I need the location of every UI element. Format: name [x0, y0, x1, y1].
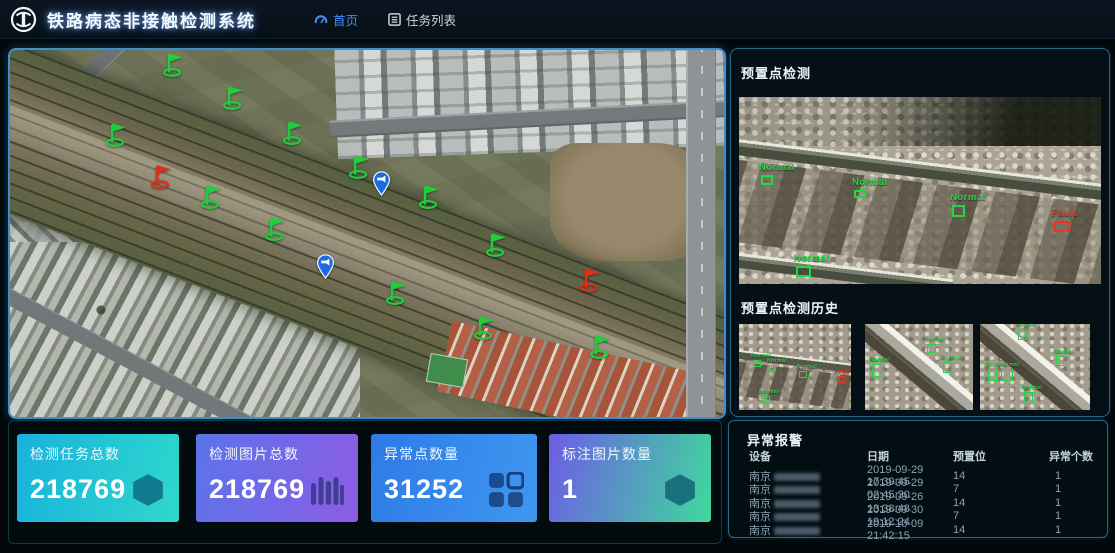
stats-strip: 检测任务总数 218769 检测图片总数 218769 异常点数量 31252: [8, 420, 722, 544]
stat-label: 标注图片数量: [562, 444, 652, 464]
nav-tasks-label: 任务列表: [406, 10, 456, 29]
grid-icon: [488, 472, 524, 508]
detection-box-normal: [799, 371, 807, 378]
flag-green-marker[interactable]: [264, 215, 288, 241]
detection-box-normal: [927, 344, 936, 353]
detection-label: Fault: [1052, 208, 1077, 219]
flag-green-marker[interactable]: [162, 51, 186, 77]
pin-blue-marker[interactable]: [372, 171, 396, 197]
alarm-title: 异常报警: [747, 430, 803, 449]
detection-label: Normal: [794, 253, 830, 264]
task-list-icon: [388, 13, 401, 26]
detection-box-normal: [1001, 369, 1013, 381]
stat-card-images: 检测图片总数 218769: [196, 434, 358, 522]
detection-panel: 预置点检测 NormalNormalNormalFaultNormal 预置点检…: [730, 48, 1110, 417]
detection-label: Normal: [759, 162, 795, 173]
flag-green-marker[interactable]: [589, 333, 613, 359]
hexagon-icon: [130, 472, 166, 508]
flag-green-marker[interactable]: [105, 121, 129, 147]
main-nav: 首页 任务列表: [314, 10, 456, 29]
redacted-text: [774, 527, 820, 535]
satellite-map[interactable]: [8, 48, 726, 419]
detection-label: Normal: [941, 355, 961, 361]
page-title: 铁路病态非接触检测系统: [47, 7, 256, 32]
detection-box-normal: [753, 360, 761, 367]
dashboard-icon: [314, 12, 328, 26]
alarm-preset: 14: [953, 524, 1049, 536]
flag-green-marker[interactable]: [485, 231, 509, 257]
stat-card-annotated: 标注图片数量 1: [549, 434, 711, 522]
alarm-count: 1: [1049, 483, 1093, 495]
detection-box-normal: [952, 205, 965, 217]
alarm-device: 南京: [749, 522, 867, 538]
flag-green-marker[interactable]: [385, 279, 409, 305]
alarm-table: 设备 日期 预置位 异常个数 南京2019-09-29 17:39:45141南…: [749, 448, 1093, 531]
detection-box-normal: [796, 266, 811, 277]
detection-box-fault: [837, 376, 845, 383]
hexagon-icon: [662, 472, 698, 508]
detection-label: Normal: [759, 389, 779, 395]
detection-box-normal: [761, 175, 773, 185]
detection-image: NormalNormalNormalFaultNormal: [739, 97, 1101, 284]
alarm-count: 1: [1049, 497, 1093, 509]
detection-label: Normal: [925, 337, 945, 343]
alarm-preset: 14: [953, 497, 1049, 509]
railway-detection-dashboard: 铁路病态非接触检测系统 首页 任务列表: [0, 0, 1115, 553]
detection-box-normal: [1018, 329, 1027, 340]
stat-card-tasks: 检测任务总数 218769: [17, 434, 179, 522]
map-marker-layer: [10, 50, 724, 417]
alarm-date: 2019-10-09 21:42:15: [867, 518, 953, 542]
flag-red-marker[interactable]: [579, 266, 603, 292]
detection-image-vegetation: [739, 97, 1101, 146]
nav-item-task-list[interactable]: 任务列表: [388, 10, 456, 29]
flag-green-marker[interactable]: [200, 183, 224, 209]
detection-label: Normal: [852, 177, 888, 188]
detection-box-normal: [1024, 392, 1033, 404]
alarm-preset: 14: [953, 470, 1049, 482]
history-title: 预置点检测历史: [741, 298, 839, 317]
stat-value: 1: [562, 474, 578, 505]
history-thumbnail-2[interactable]: NormalNormalNormal: [865, 324, 973, 410]
stat-label: 检测图片总数: [209, 444, 299, 464]
bars-icon: [309, 472, 345, 508]
detection-label: Normal: [1054, 349, 1074, 355]
alarm-preset: 7: [953, 483, 1049, 495]
stat-value: 218769: [209, 474, 305, 505]
redacted-text: [774, 500, 820, 508]
stat-value: 218769: [30, 474, 126, 505]
detection-box-normal: [872, 364, 882, 377]
pin-blue-marker[interactable]: [316, 254, 340, 280]
flag-green-marker[interactable]: [348, 153, 372, 179]
history-thumbnail-1[interactable]: NormalNormalNormalFaultNormal: [739, 324, 851, 410]
alarm-count: 1: [1049, 524, 1093, 536]
redacted-text: [774, 486, 820, 494]
nav-home-label: 首页: [333, 10, 358, 29]
railway-logo-icon: [10, 6, 37, 33]
detection-box-fault: [1054, 221, 1069, 232]
stat-card-abnormal: 异常点数量 31252: [371, 434, 537, 522]
redacted-text: [774, 473, 820, 481]
history-thumbnails: NormalNormalNormalFaultNormalNormalNorma…: [739, 324, 1101, 410]
col-device: 设备: [749, 448, 867, 464]
detection-title: 预置点检测: [741, 63, 811, 82]
col-preset: 预置位: [953, 448, 1049, 464]
stat-label: 异常点数量: [384, 444, 459, 464]
detection-box-normal: [854, 190, 866, 198]
alarm-table-header: 设备 日期 预置位 异常个数: [749, 448, 1093, 464]
alarm-table-body: 南京2019-09-29 17:39:45141南京2019-09-29 02:…: [749, 464, 1093, 531]
history-thumbnail-3[interactable]: NormalNormalNormalNormalNormal: [980, 324, 1090, 410]
flag-green-marker[interactable]: [282, 119, 306, 145]
redacted-text: [774, 513, 820, 521]
detection-box-normal: [761, 396, 770, 403]
alarm-panel: 异常报警 设备 日期 预置位 异常个数 南京2019-09-29 17:39:4…: [728, 420, 1108, 538]
flag-green-marker[interactable]: [418, 183, 442, 209]
col-date: 日期: [867, 448, 953, 464]
detection-label: Normal: [1022, 385, 1042, 391]
alarm-count: 1: [1049, 510, 1093, 522]
header: 铁路病态非接触检测系统 首页 任务列表: [0, 0, 1115, 39]
nav-item-home[interactable]: 首页: [314, 10, 358, 29]
detection-box-normal: [943, 362, 952, 373]
detection-label: Normal: [870, 357, 890, 363]
detection-box-normal: [1056, 356, 1064, 366]
detection-box-normal: [769, 365, 776, 371]
stat-value: 31252: [384, 474, 464, 505]
flag-green-marker[interactable]: [222, 84, 246, 110]
stat-label: 检测任务总数: [30, 444, 120, 464]
detection-label: Normal: [1016, 324, 1036, 328]
detection-label: Normal: [767, 358, 787, 364]
alarm-count: 1: [1049, 470, 1093, 482]
col-count: 异常个数: [1049, 448, 1093, 464]
detection-label: Fault: [835, 369, 849, 375]
detection-label: Normal: [797, 364, 817, 370]
alarm-preset: 7: [953, 510, 1049, 522]
flag-green-marker[interactable]: [473, 314, 497, 340]
detection-box-normal: [988, 369, 997, 381]
detection-label: Normal: [950, 192, 986, 203]
alarm-row: 南京2019-09-29 17:39:45141: [749, 464, 1093, 477]
detection-label: Normal: [999, 362, 1019, 368]
flag-red-marker[interactable]: [150, 163, 174, 189]
